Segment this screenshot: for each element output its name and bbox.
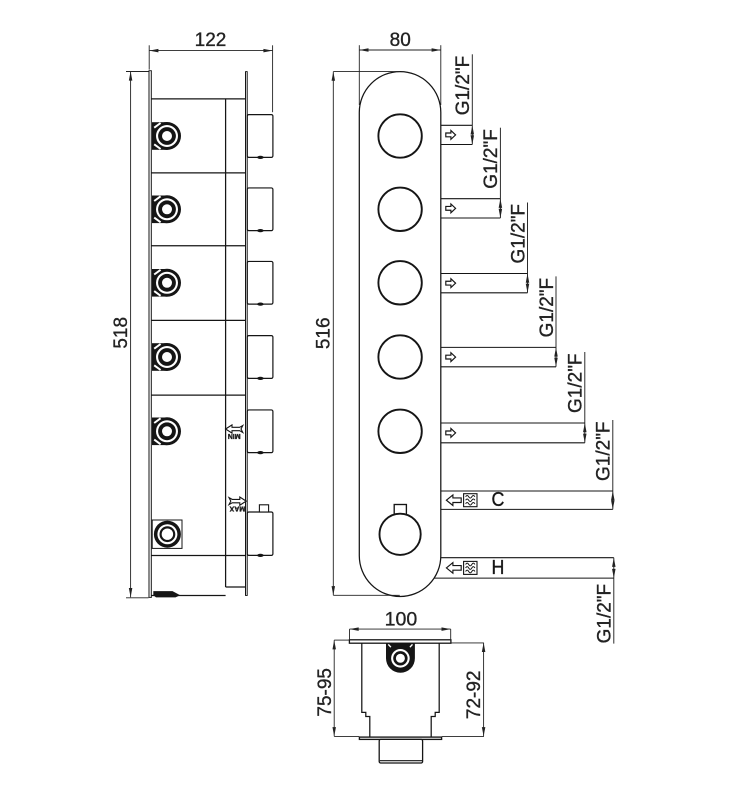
svg-text:122: 122 xyxy=(195,30,227,51)
svg-text:C: C xyxy=(492,489,505,511)
svg-text:516: 516 xyxy=(314,317,335,349)
svg-text:G1/2"F: G1/2"F xyxy=(595,584,616,644)
svg-text:75-95: 75-95 xyxy=(315,668,336,717)
svg-text:MIN: MIN xyxy=(228,432,241,439)
svg-text:72-92: 72-92 xyxy=(464,670,485,719)
svg-text:G1/2"F: G1/2"F xyxy=(566,353,587,413)
svg-text:G1/2"F: G1/2"F xyxy=(508,204,529,264)
svg-text:H: H xyxy=(492,557,505,579)
svg-text:G1/2"F: G1/2"F xyxy=(453,56,474,116)
svg-text:518: 518 xyxy=(111,317,132,349)
svg-text:MAX: MAX xyxy=(229,504,245,511)
svg-text:80: 80 xyxy=(390,30,411,51)
svg-text:G1/2"F: G1/2"F xyxy=(594,421,615,481)
svg-text:G1/2"F: G1/2"F xyxy=(537,278,558,338)
svg-text:100: 100 xyxy=(385,609,418,631)
svg-text:G1/2"F: G1/2"F xyxy=(481,129,502,189)
